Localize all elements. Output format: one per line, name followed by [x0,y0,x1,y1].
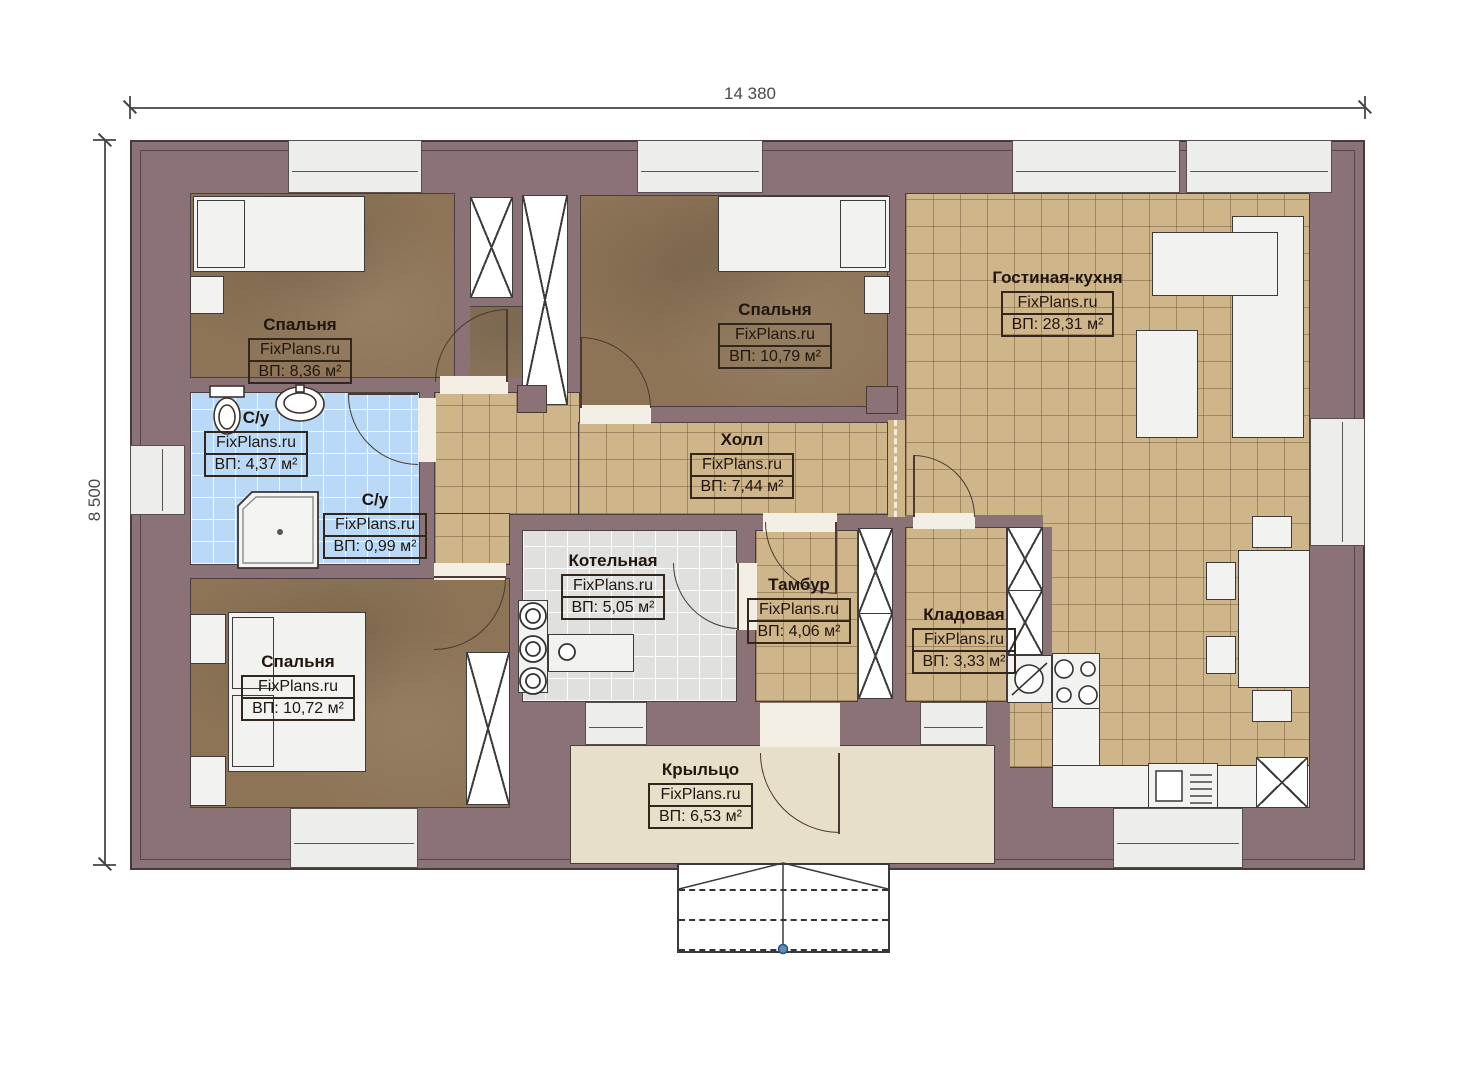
watermark: FixPlans.ru [243,677,353,699]
window [1113,808,1243,868]
watermark: FixPlans.ru [914,630,1015,652]
floor-hall-west [434,392,580,515]
floor-hall-corridor [434,513,510,565]
nightstand-icon [190,614,226,664]
watermark: FixPlans.ru [563,576,664,598]
room-title: С/у [362,490,388,510]
room-label-bathroom-main: С/у FixPlans.ru ВП: 4,37 м² [196,408,316,477]
room-title: С/у [243,408,269,428]
window [585,702,647,745]
room-label-storage: Кладовая FixPlans.ru ВП: 3,33 м² [905,605,1023,674]
room-title: Гостиная-кухня [992,268,1122,288]
step-line [679,889,888,891]
wall-storage-left [893,527,905,702]
door-leaf [913,455,915,517]
dimension-line-top [130,107,1365,109]
room-area: ВП: 5,05 м² [563,598,664,618]
room-area: ВП: 28,31 м² [1003,315,1113,335]
pillow-icon [840,200,886,268]
room-area: ВП: 10,72 м² [243,699,353,719]
door-leaf [348,393,418,395]
watermark: FixPlans.ru [325,515,426,537]
watermark: FixPlans.ru [206,433,307,455]
nightstand-icon [190,756,226,806]
window-frame [1190,171,1328,173]
room-label-bathroom-small: С/у FixPlans.ru ВП: 0,99 м² [322,490,428,559]
window [288,140,422,193]
window-frame [1117,843,1239,845]
door-leaf [838,753,840,834]
room-title: Спальня [263,315,336,335]
sofa-chaise-icon [1152,232,1278,296]
chair-icon [1206,636,1236,674]
room-title: Тамбур [768,575,830,595]
shaft-hatch [1007,527,1043,591]
floor-plan: 14 380 8 500 [0,0,1473,1080]
door-opening-bathroom [418,398,436,462]
coffee-table-icon [1136,330,1198,438]
stove-icon [1052,653,1100,709]
door-leaf [506,309,508,382]
open-passage [888,420,905,517]
window [920,702,987,745]
wall-porch-right [995,745,1010,769]
nightstand-icon [864,276,890,314]
porch-steps [677,863,890,953]
room-title: Кладовая [923,605,1004,625]
room-label-bedroom-1: Спальня FixPlans.ru ВП: 8,36 м² [205,315,395,384]
room-area: ВП: 7,44 м² [692,477,793,497]
room-title: Спальня [261,652,334,672]
window-frame [641,171,759,173]
watermark: FixPlans.ru [650,785,751,807]
window-frame [292,171,418,173]
fridge-icon [1256,757,1308,808]
boiler-counter-icon [548,634,634,672]
dining-table-icon [1238,550,1310,688]
room-area: ВП: 4,37 м² [206,455,307,475]
dimension-height-label: 8 500 [85,460,105,540]
window-frame [162,449,164,511]
step-line [679,919,888,921]
closet-hatch [470,197,513,298]
room-title: Котельная [568,551,657,571]
wall-pier [517,385,547,413]
room-area: ВП: 3,33 м² [914,652,1015,672]
chair-icon [1252,690,1292,722]
room-label-boiler-room: Котельная FixPlans.ru ВП: 5,05 м² [548,551,678,620]
room-label-living-kitchen: Гостиная-кухня FixPlans.ru ВП: 28,31 м² [965,268,1150,337]
window [1012,140,1180,193]
room-area: ВП: 8,36 м² [250,362,351,382]
boiler-unit-icon [518,600,548,693]
watermark: FixPlans.ru [250,340,351,362]
chair-icon [1206,562,1236,600]
door-leaf [580,337,582,408]
watermark: FixPlans.ru [692,455,793,477]
watermark: FixPlans.ru [720,325,830,347]
window-frame [294,843,414,845]
window [637,140,763,193]
nightstand-icon [190,276,224,314]
room-label-hall: Холл FixPlans.ru ВП: 7,44 м² [672,430,812,499]
room-area: ВП: 6,53 м² [650,807,751,827]
room-area: ВП: 0,99 м² [325,537,426,557]
window [130,445,185,515]
room-area: ВП: 4,06 м² [749,622,850,642]
window-frame [1016,171,1176,173]
wall-pier [866,386,898,414]
watermark: FixPlans.ru [749,600,850,622]
window-frame [589,727,643,729]
chair-icon [1252,516,1292,548]
window-frame [1342,422,1344,542]
window-frame [924,727,983,729]
open-passage-dashes [894,420,897,517]
room-title: Спальня [738,300,811,320]
room-label-bedroom-2: Спальня FixPlans.ru ВП: 10,79 м² [690,300,860,369]
window [290,808,418,868]
dimension-width-label: 14 380 [690,84,810,104]
entry-door-opening [760,703,840,747]
room-label-vestibule: Тамбур FixPlans.ru ВП: 4,06 м² [740,575,858,644]
room-label-porch: Крыльцо FixPlans.ru ВП: 6,53 м² [638,760,763,829]
room-title: Крыльцо [662,760,739,780]
pillow-icon [197,200,245,268]
room-label-bedroom-3: Спальня FixPlans.ru ВП: 10,72 м² [233,652,363,721]
window [1186,140,1332,193]
oven-icon [1148,763,1218,808]
step-line [679,949,888,951]
watermark: FixPlans.ru [1003,293,1113,315]
door-leaf [737,563,739,630]
room-area: ВП: 10,79 м² [720,347,830,367]
shaft-hatch [858,613,893,699]
wardrobe-hatch [466,652,510,805]
window [1310,418,1365,546]
wall-storage-top-right [975,515,1043,527]
shaft-hatch [858,528,893,614]
door-leaf [434,576,506,578]
closet-hatch [522,195,568,405]
room-title: Холл [721,430,764,450]
